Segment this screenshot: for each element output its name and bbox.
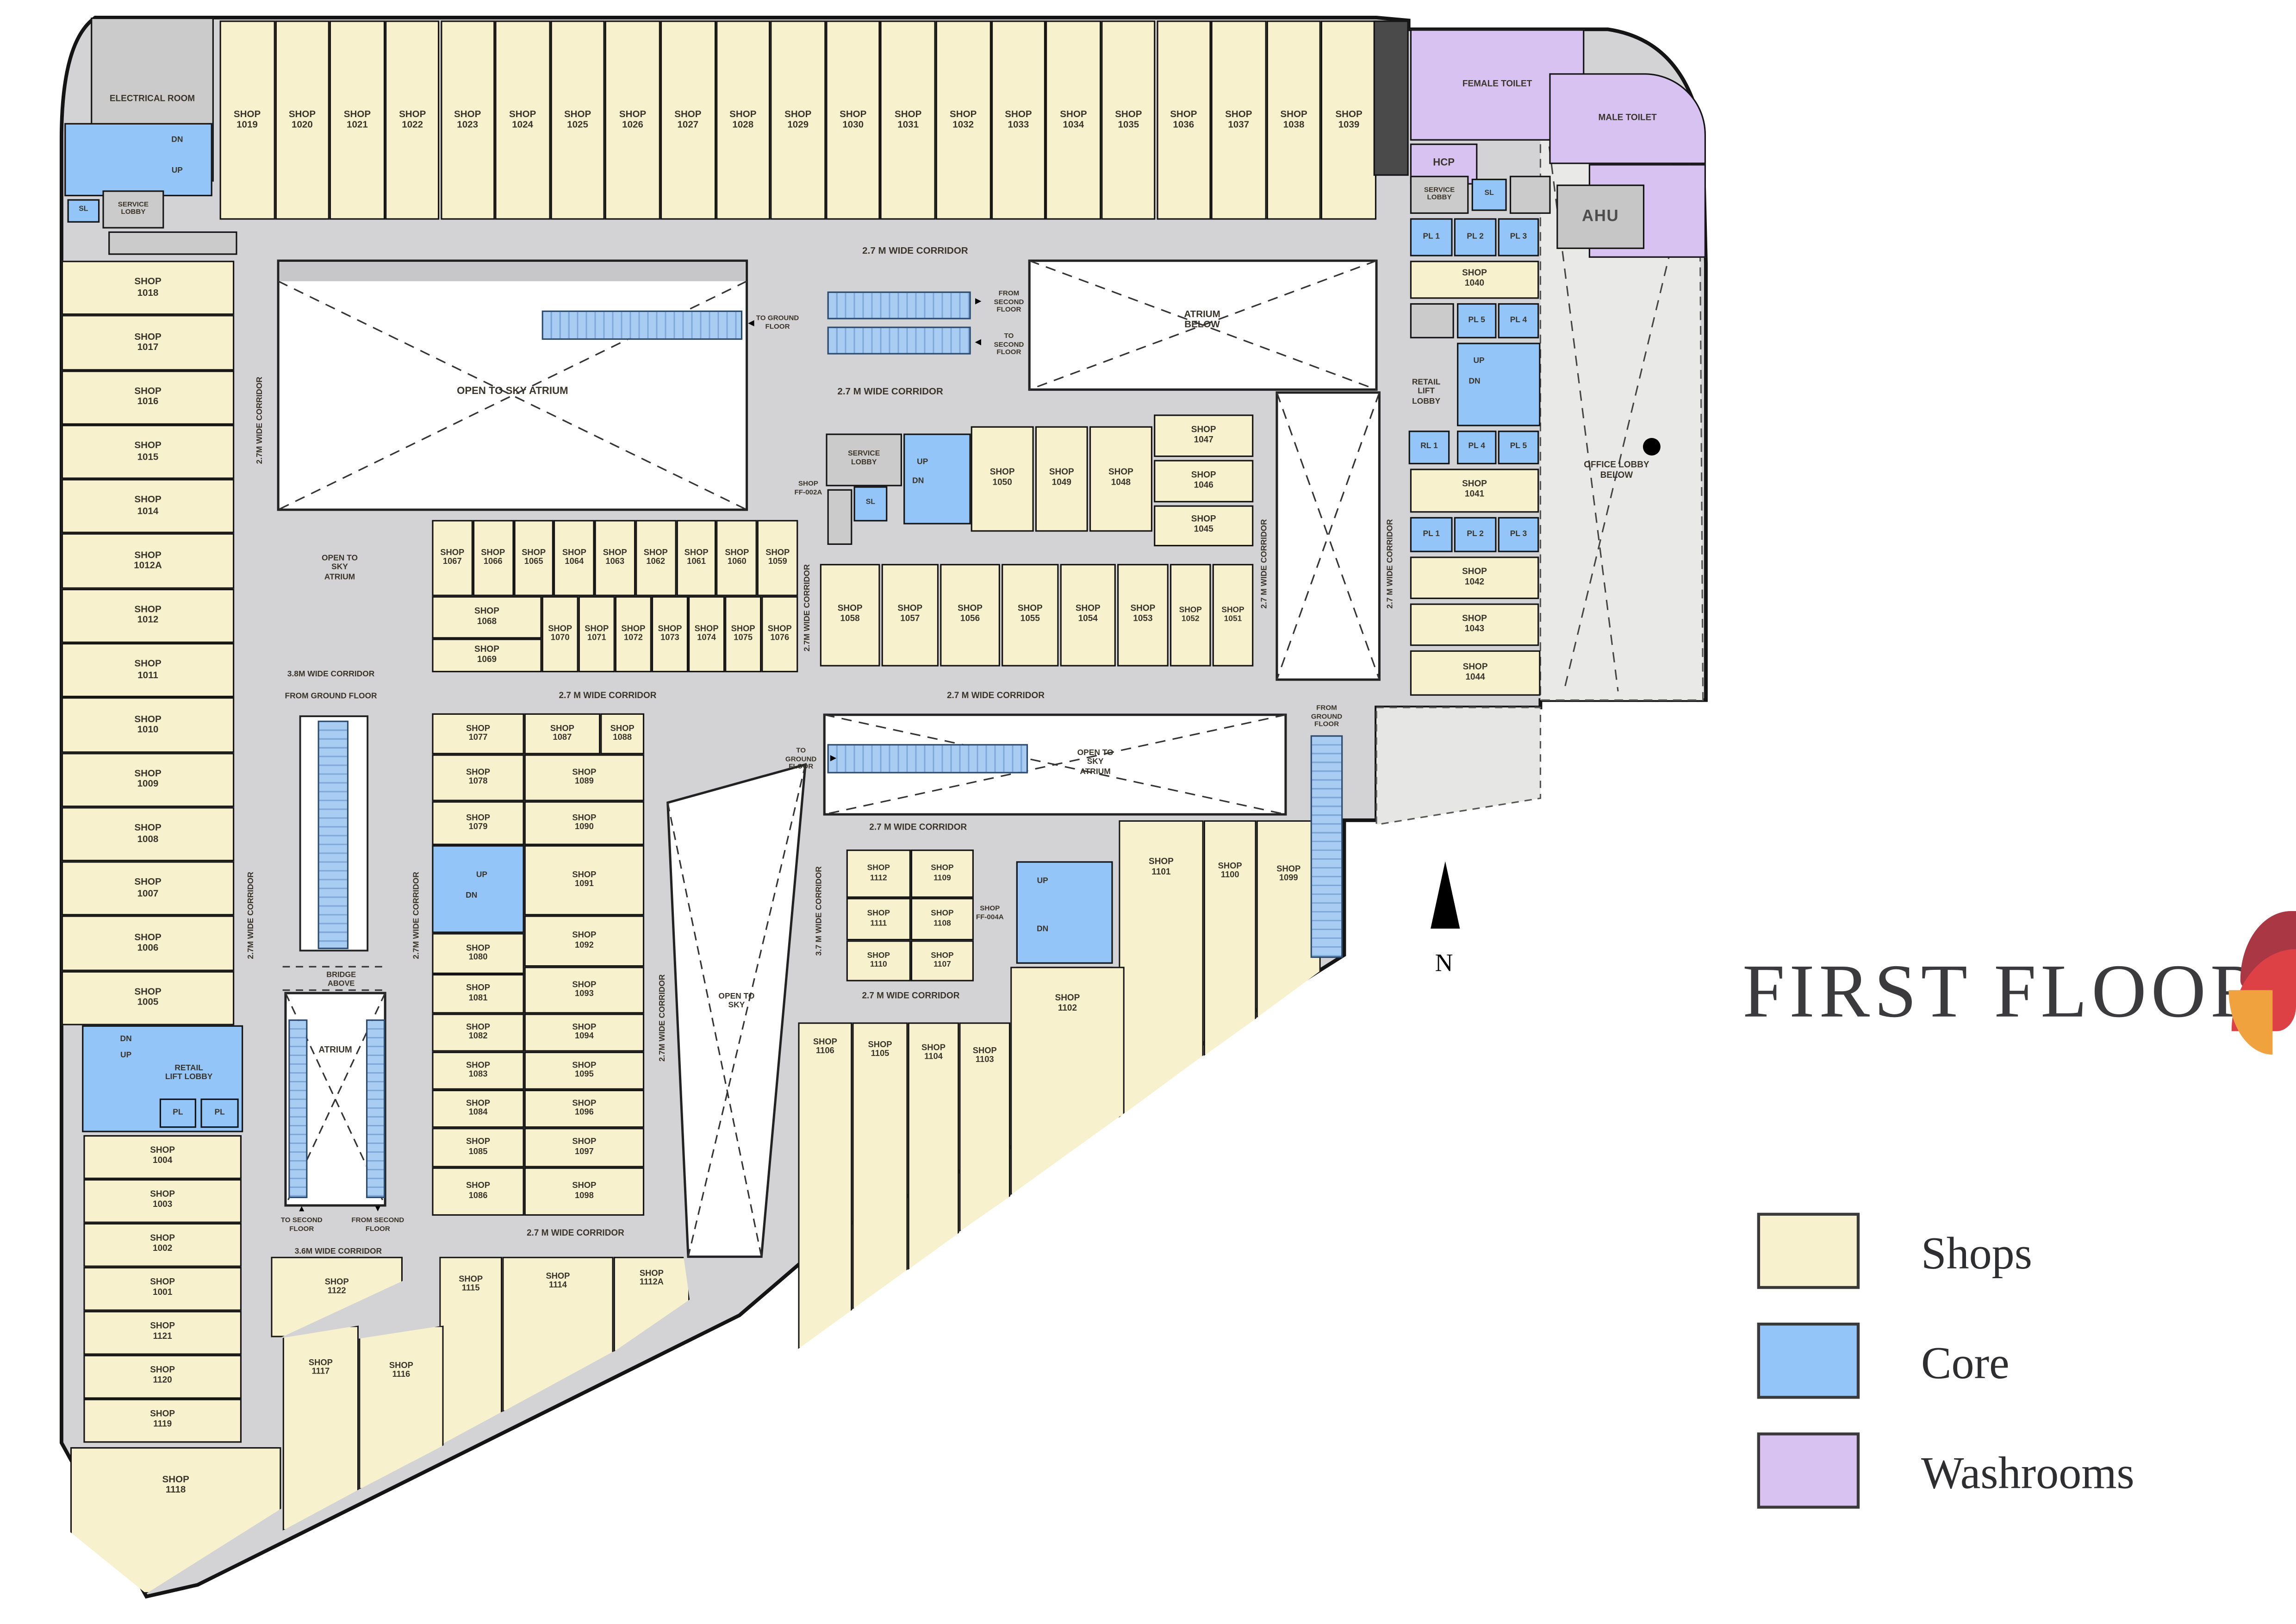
shop-1097-label: SHOP 1097 [572, 1138, 596, 1157]
shop-1047-label: SHOP 1047 [1191, 426, 1216, 446]
pl2-upper: PL 2 [1454, 218, 1497, 256]
shop-1091: SHOP 1091 [524, 845, 644, 916]
pl3-upper-label: PL 3 [1510, 233, 1527, 242]
shop-1074: SHOP 1074 [688, 596, 725, 673]
shop-1106-label: SHOP 1106 [813, 1038, 837, 1057]
pl4-upper-label: PL 4 [1510, 316, 1527, 325]
svc-pl [1410, 303, 1454, 338]
shop-1052: SHOP 1052 [1170, 564, 1211, 666]
pl2-lower: PL 2 [1454, 517, 1497, 552]
pl1-lower: PL 1 [1410, 517, 1453, 552]
shop-1097: SHOP 1097 [524, 1128, 644, 1167]
shop-1042-label: SHOP 1042 [1462, 568, 1487, 588]
rl1-label: RL 1 [1420, 443, 1437, 452]
shaft-ne [1510, 176, 1551, 214]
shop-1019: SHOP 1019 [220, 20, 275, 219]
shop-1010: SHOP 1010 [62, 698, 234, 752]
dn-ne: DN [1468, 378, 1480, 387]
shop-1008-label: SHOP 1008 [134, 824, 161, 845]
shop-1092-label: SHOP 1092 [572, 931, 596, 950]
shop-1117-label: SHOP 1117 [309, 1359, 333, 1378]
office-dot-2 [1643, 438, 1661, 456]
shop-1018-label: SHOP 1018 [134, 277, 161, 299]
shop-1036: SHOP 1036 [1156, 20, 1211, 219]
svc-nw [108, 231, 237, 255]
pl4-mid-label: PL 4 [1468, 443, 1485, 452]
shop-1019-label: SHOP 1019 [234, 109, 261, 131]
shop-1116-label: SHOP 1116 [389, 1362, 413, 1381]
shop-1100-label: SHOP 1100 [1218, 863, 1242, 882]
shop-1061: SHOP 1061 [676, 520, 717, 596]
corridor-blockA-below: 2.7 M WIDE CORRIDOR [559, 692, 657, 702]
shop-1062-label: SHOP 1062 [644, 549, 668, 568]
shop-1093-label: SHOP 1093 [572, 981, 596, 999]
shop-1020: SHOP 1020 [275, 20, 330, 219]
escalator-to-second [828, 327, 971, 355]
shop-1068-label: SHOP 1068 [474, 607, 499, 627]
shop-1016-label: SHOP 1016 [134, 387, 161, 408]
pl1-upper-label: PL 1 [1423, 233, 1439, 242]
shop-1012A-label: SHOP 1012A [134, 550, 162, 572]
shop-1023: SHOP 1023 [440, 20, 495, 219]
dn-L: DN [466, 892, 477, 901]
electrical-room-label: ELECTRICAL ROOM [110, 95, 195, 105]
shop-1006: SHOP 1006 [62, 916, 234, 971]
shop-1041: SHOP 1041 [1410, 468, 1539, 512]
shop-1009-label: SHOP 1009 [134, 769, 161, 790]
shop-1045: SHOP 1045 [1154, 506, 1253, 547]
shop-1100: SHOP 1100 [1204, 820, 1257, 1056]
shop-1014: SHOP 1014 [62, 479, 234, 534]
shop-1109: SHOP 1109 [911, 849, 974, 898]
shop-1007-label: SHOP 1007 [134, 878, 161, 899]
shop-1044: SHOP 1044 [1410, 650, 1541, 696]
page-title: FIRST FLOOR [1742, 949, 2265, 1036]
shop-1111: SHOP 1111 [846, 898, 911, 940]
to-second-floor-sw: TO SECOND FLOOR [281, 1218, 323, 1234]
shop-1055: SHOP 1055 [1002, 564, 1058, 666]
shop-1029-label: SHOP 1029 [784, 109, 811, 131]
shop-1112-label: SHOP 1112 [867, 865, 890, 883]
arrow-down-from-second: ▼ [373, 1206, 382, 1214]
shop-1026: SHOP 1026 [605, 20, 660, 219]
floor-plan: ELECTRICAL ROOMSLSERVICE LOBBYSHOP 1019S… [0, 0, 2296, 1624]
arrow-left-to-second: ◀ [975, 338, 981, 347]
shop-1031: SHOP 1031 [881, 20, 936, 219]
corridor-mid-top: 2.7 M WIDE CORRIDOR [837, 387, 943, 398]
sl-nw: SL [68, 199, 100, 223]
shop-1003-label: SHOP 1003 [150, 1191, 175, 1211]
shop-1057: SHOP 1057 [882, 564, 939, 666]
shop-1030-label: SHOP 1030 [840, 109, 866, 131]
svc-lobby-c-label: SERVICE LOBBY [848, 452, 880, 468]
shop-1024-label: SHOP 1024 [509, 109, 536, 131]
male-toilet-label: MALE TOILET [1599, 114, 1657, 124]
shop-1005: SHOP 1005 [62, 971, 234, 1025]
from-second-floor-c: FROM SECOND FLOOR [994, 291, 1024, 315]
shop-1098: SHOP 1098 [524, 1168, 644, 1216]
shop-1112: SHOP 1112 [846, 849, 911, 898]
dn-c: DN [912, 477, 924, 487]
corridor-top: 2.7 M WIDE CORRIDOR [862, 246, 968, 257]
shop-1046-label: SHOP 1046 [1191, 471, 1216, 491]
shop-1094-label: SHOP 1094 [572, 1023, 596, 1042]
shop-ff002a: SHOP FF-002A [795, 481, 822, 497]
shop-1081: SHOP 1081 [432, 974, 524, 1013]
service-lobby-nw-label: SERVICE LOBBY [118, 201, 149, 217]
open-to-sky-small: OPEN TO SKY ATRIUM [322, 555, 358, 582]
hcp-label: HCP [1433, 158, 1455, 170]
shop-1022-label: SHOP 1022 [399, 109, 426, 131]
shop-1088: SHOP 1088 [600, 713, 644, 755]
escalator-atrium-left [288, 1019, 307, 1198]
shop-1020-label: SHOP 1020 [289, 109, 316, 131]
to-ground-floor-bottom: TO GROUND FLOOR [785, 748, 816, 772]
shop-1078: SHOP 1078 [432, 754, 524, 801]
shop-1062: SHOP 1062 [635, 520, 676, 596]
shop-1032-label: SHOP 1032 [950, 109, 977, 131]
shop-1076-label: SHOP 1076 [768, 625, 792, 643]
shop-1050-label: SHOP 1050 [990, 469, 1015, 489]
shop-1042: SHOP 1042 [1410, 556, 1539, 599]
shop-1056-label: SHOP 1056 [958, 606, 983, 625]
retail-lift-lobby-sw: RETAIL LIFT LOBBY [165, 1064, 212, 1083]
shop-1119-label: SHOP 1119 [150, 1411, 175, 1431]
shop-1115-label: SHOP 1115 [459, 1276, 483, 1295]
shop-1028: SHOP 1028 [716, 20, 771, 219]
pl5-upper: PL 5 [1457, 303, 1496, 338]
shop-1105: SHOP 1105 [852, 1022, 908, 1309]
shop-1121: SHOP 1121 [83, 1311, 242, 1355]
shop-1028-label: SHOP 1028 [729, 109, 756, 131]
shop-1108-label: SHOP 1108 [931, 910, 953, 928]
shop-1044-label: SHOP 1044 [1463, 663, 1488, 683]
shop-1077: SHOP 1077 [432, 713, 524, 755]
shop-1099-label: SHOP 1099 [1276, 866, 1300, 885]
pl3-lower-label: PL 3 [1510, 530, 1527, 539]
shop-1091-label: SHOP 1091 [572, 871, 596, 890]
shop-1075-label: SHOP 1075 [731, 625, 755, 643]
north-label: N [1435, 949, 1453, 978]
shop-1075: SHOP 1075 [725, 596, 761, 673]
pl-sw-1-label: PL [173, 1109, 183, 1118]
up-L: UP [476, 871, 487, 881]
escalator-left-long [318, 721, 348, 949]
shop-1086-label: SHOP 1086 [466, 1182, 490, 1201]
shop-1047: SHOP 1047 [1154, 414, 1253, 457]
corridor-37: 3.7 M WIDE CORRIDOR [815, 866, 825, 956]
corridor-blockA-right: 2.7M WIDE CORRIDOR [803, 564, 813, 652]
shop-1055-label: SHOP 1055 [1018, 606, 1043, 625]
shop-1058: SHOP 1058 [820, 564, 880, 666]
sl-c-label: SL [866, 500, 875, 508]
shop-1088-label: SHOP 1088 [610, 725, 635, 743]
svc-c-strip [828, 489, 852, 545]
shop-1122-label: SHOP 1122 [325, 1279, 349, 1298]
up-sw: UP [120, 1051, 131, 1061]
shop-1063: SHOP 1063 [595, 520, 635, 596]
shop-1005-label: SHOP 1005 [134, 987, 161, 1009]
firestair-ne [1374, 20, 1409, 175]
shop-1023-label: SHOP 1023 [454, 109, 481, 131]
open-to-sky-atrium-main: OPEN TO SKY ATRIUM [457, 387, 568, 398]
shop-1033-label: SHOP 1033 [1005, 109, 1032, 131]
service-lobby-nw: SERVICE LOBBY [102, 190, 164, 228]
shop-1109-label: SHOP 1109 [931, 865, 953, 883]
shop-1043: SHOP 1043 [1410, 604, 1539, 646]
shop-1014-label: SHOP 1014 [134, 496, 161, 517]
shop-1087-label: SHOP 1087 [550, 725, 574, 743]
atrium-shaft: ATRIUM [318, 1047, 352, 1057]
shop-1073-label: SHOP 1073 [658, 625, 682, 643]
shop-1017-label: SHOP 1017 [134, 332, 161, 353]
shop-1012-label: SHOP 1012 [134, 605, 161, 626]
shop-1015-label: SHOP 1015 [134, 441, 161, 462]
shop-1066-label: SHOP 1066 [481, 549, 505, 568]
up-ne: UP [1473, 357, 1484, 366]
corridor-left-lower: 2.7M WIDE CORRIDOR [247, 872, 256, 959]
shop-1041-label: SHOP 1041 [1462, 481, 1487, 501]
shop-1095-label: SHOP 1095 [572, 1061, 596, 1080]
corridor-mid-left: 2.7M WIDE CORRIDOR [413, 872, 422, 959]
pl2-upper-label: PL 2 [1467, 233, 1483, 242]
shop-1079: SHOP 1079 [432, 801, 524, 845]
shop-1114-label: SHOP 1114 [546, 1273, 570, 1292]
shop-1087: SHOP 1087 [524, 713, 601, 755]
shop-1029: SHOP 1029 [771, 20, 826, 219]
shop-1120: SHOP 1120 [83, 1355, 242, 1399]
from-ground-floor-e: FROM GROUND FLOOR [1311, 706, 1342, 730]
sl-c: SL [854, 486, 888, 521]
shop-1024: SHOP 1024 [495, 20, 550, 219]
pl1-upper: PL 1 [1410, 218, 1453, 256]
shop-1085: SHOP 1085 [432, 1128, 524, 1167]
shop-1071: SHOP 1071 [579, 596, 615, 673]
shop-1037-label: SHOP 1037 [1225, 109, 1252, 131]
shop-1057-label: SHOP 1057 [897, 606, 922, 625]
shop-1034-label: SHOP 1034 [1060, 109, 1087, 131]
shop-1007: SHOP 1007 [62, 862, 234, 916]
shop-1090: SHOP 1090 [524, 801, 644, 845]
sl-ne: SL [1472, 179, 1507, 211]
shop-1077-label: SHOP 1077 [466, 725, 490, 743]
shop-1049-label: SHOP 1049 [1049, 469, 1074, 489]
rl1: RL 1 [1409, 431, 1450, 464]
shop-1048: SHOP 1048 [1089, 426, 1152, 532]
shop-1103: SHOP 1103 [959, 1022, 1010, 1231]
shop-1043-label: SHOP 1043 [1462, 615, 1487, 635]
pl5-mid: PL 5 [1498, 431, 1539, 464]
shop-1078-label: SHOP 1078 [466, 768, 490, 787]
from-second-floor-sw: FROM SECOND FLOOR [351, 1218, 404, 1234]
shop-1036-label: SHOP 1036 [1170, 109, 1197, 131]
shop-1048-label: SHOP 1048 [1108, 469, 1133, 489]
shop-1060-label: SHOP 1060 [725, 549, 749, 568]
corridor-wedge: 2.7M WIDE CORRIDOR [659, 974, 668, 1062]
shop-1061-label: SHOP 1061 [684, 549, 709, 568]
shop-1064: SHOP 1064 [554, 520, 595, 596]
shop-1082-label: SHOP 1082 [466, 1023, 490, 1042]
shop-1008: SHOP 1008 [62, 807, 234, 862]
arrow-right-from-second: ▶ [975, 297, 981, 306]
shop-1035: SHOP 1035 [1101, 20, 1156, 219]
open-to-sky-wedge: OPEN TO SKY [718, 993, 754, 1011]
atrium-right-void [1277, 393, 1379, 680]
shop-1003: SHOP 1003 [83, 1179, 242, 1223]
shop-1039: SHOP 1039 [1321, 20, 1376, 219]
shop-1110-label: SHOP 1110 [867, 952, 890, 970]
shop-1002: SHOP 1002 [83, 1223, 242, 1267]
shop-1112A-label: SHOP 1112A [640, 1270, 664, 1289]
shop-1067: SHOP 1067 [432, 520, 473, 596]
shop-1072: SHOP 1072 [615, 596, 652, 673]
shop-1011-label: SHOP 1011 [134, 660, 161, 681]
up-c: UP [917, 458, 928, 468]
shop-1035-label: SHOP 1035 [1115, 109, 1142, 131]
corridor-38: 3.8M WIDE CORRIDOR [287, 671, 375, 680]
atrium-below: ATRIUM BELOW [1184, 310, 1220, 331]
shop-1089-label: SHOP 1089 [572, 768, 596, 787]
shop-1081-label: SHOP 1081 [466, 984, 490, 1003]
shop-1093: SHOP 1093 [524, 967, 644, 1013]
open-to-sky-bottom: OPEN TO SKY ATRIUM [1077, 749, 1114, 777]
female-toilet-label: FEMALE TOILET [1462, 80, 1532, 90]
corridor-south: 2.7 M WIDE CORRIDOR [862, 993, 959, 1003]
escalator-atrium-right [366, 1019, 385, 1198]
shop-1045-label: SHOP 1045 [1191, 516, 1216, 536]
shop-1105-label: SHOP 1105 [868, 1042, 892, 1061]
shop-1096-label: SHOP 1096 [572, 1099, 596, 1118]
shop-1038: SHOP 1038 [1266, 20, 1321, 219]
shop-1085-label: SHOP 1085 [466, 1138, 490, 1157]
shop-1060: SHOP 1060 [716, 520, 757, 596]
shop-1053: SHOP 1053 [1117, 564, 1169, 666]
shop-1107: SHOP 1107 [911, 940, 974, 981]
pl5-mid-label: PL 5 [1510, 443, 1527, 452]
shop-1101-label: SHOP 1101 [1149, 858, 1174, 878]
shop-1079-label: SHOP 1079 [466, 814, 490, 833]
shop-1051: SHOP 1051 [1213, 564, 1254, 666]
shop-1037: SHOP 1037 [1211, 20, 1266, 219]
escalator-from-ground-shaft [1311, 735, 1343, 958]
shop-1094: SHOP 1094 [524, 1013, 644, 1051]
shop-1106: SHOP 1106 [798, 1022, 852, 1349]
shop-1065: SHOP 1065 [513, 520, 554, 596]
from-ground-floor-left: FROM GROUND FLOOR [285, 693, 377, 702]
corridor-left-upper: 2.7M WIDE CORRIDOR [256, 377, 265, 464]
shop-1054-label: SHOP 1054 [1076, 606, 1101, 625]
shop-1069-label: SHOP 1069 [474, 646, 499, 666]
shop-1071-label: SHOP 1071 [585, 625, 609, 643]
shop-1027-label: SHOP 1027 [674, 109, 701, 131]
below-1044-region [1376, 707, 1540, 824]
shop-1017: SHOP 1017 [62, 315, 234, 370]
shop-1104: SHOP 1104 [908, 1022, 959, 1270]
office-lobby-below: OFFICE LOBBY BELOW [1584, 462, 1649, 482]
shop-1119: SHOP 1119 [83, 1399, 242, 1443]
atrium-open-to-sky-main [278, 261, 747, 510]
shop-1059-label: SHOP 1059 [765, 549, 790, 568]
shop-1018: SHOP 1018 [62, 261, 234, 315]
shop-1006-label: SHOP 1006 [134, 933, 161, 954]
shop-1051-label: SHOP 1051 [1221, 606, 1244, 624]
shop-1083: SHOP 1083 [432, 1052, 524, 1090]
stair-sc [1016, 861, 1113, 963]
sl-nw-label: SL [79, 207, 88, 215]
arrow-left-to-ground-top: ◀ [748, 319, 754, 328]
shop-1084-label: SHOP 1084 [466, 1099, 490, 1118]
legend-label-core: Core [1921, 1337, 2010, 1390]
shop-1080: SHOP 1080 [432, 933, 524, 974]
shop-1107-label: SHOP 1107 [931, 952, 953, 970]
shop-1025-label: SHOP 1025 [564, 109, 591, 131]
shop-1092: SHOP 1092 [524, 915, 644, 967]
shop-1046: SHOP 1046 [1154, 460, 1253, 502]
pl5-upper-label: PL 5 [1468, 316, 1485, 325]
pl2-lower-label: PL 2 [1467, 530, 1483, 539]
shop-1001-label: SHOP 1001 [150, 1279, 175, 1299]
male-toilet: MALE TOILET [1549, 73, 1706, 164]
shop-1001: SHOP 1001 [83, 1267, 242, 1311]
shop-1056: SHOP 1056 [940, 564, 1000, 666]
shop-1064-label: SHOP 1064 [562, 549, 586, 568]
to-ground-floor-top: TO GROUND FLOOR [756, 316, 799, 332]
escalator-to-ground-top [542, 311, 742, 340]
sl-ne-label: SL [1485, 191, 1494, 199]
stair-L [432, 845, 524, 933]
up-sc: UP [1037, 877, 1048, 887]
shop-1012: SHOP 1012 [62, 588, 234, 643]
shop-1040-label: SHOP 1040 [1462, 270, 1487, 290]
arrow-up-to-second: ▲ [297, 1206, 306, 1214]
corridor-atrium-right: 2.7 M WIDE CORRIDOR [1261, 519, 1270, 608]
shop-1027: SHOP 1027 [660, 20, 716, 219]
shop-1021-label: SHOP 1021 [344, 109, 371, 131]
shop-1026-label: SHOP 1026 [619, 109, 646, 131]
shop-1063-label: SHOP 1063 [603, 549, 627, 568]
shop-1070-label: SHOP 1070 [548, 625, 572, 643]
shop-1066: SHOP 1066 [473, 520, 513, 596]
shop-1050: SHOP 1050 [971, 426, 1034, 532]
shop-1111-label: SHOP 1111 [867, 910, 890, 928]
pl-sw-2-label: PL [214, 1109, 224, 1118]
dn-sc: DN [1037, 925, 1048, 935]
shop-1004-label: SHOP 1004 [150, 1147, 175, 1167]
shop-1033: SHOP 1033 [991, 20, 1046, 219]
to-second-floor-c: TO SECOND FLOOR [994, 334, 1024, 358]
shop-1103-label: SHOP 1103 [973, 1047, 997, 1066]
shop-1073: SHOP 1073 [652, 596, 688, 673]
shop-1108: SHOP 1108 [911, 898, 974, 940]
legend-swatch-shops [1757, 1213, 1860, 1289]
legend-swatch-core [1757, 1323, 1860, 1399]
shop-1090-label: SHOP 1090 [572, 814, 596, 833]
shop-1095: SHOP 1095 [524, 1052, 644, 1090]
shop-1040: SHOP 1040 [1410, 261, 1539, 299]
pl4-upper: PL 4 [1498, 303, 1539, 338]
shop-1053-label: SHOP 1053 [1130, 606, 1155, 625]
shop-1104-label: SHOP 1104 [921, 1044, 946, 1063]
pl-sw-1: PL [160, 1099, 196, 1128]
corridor-bottom-atrium: 2.7 M WIDE CORRIDOR [869, 824, 967, 834]
shop-1009: SHOP 1009 [62, 752, 234, 807]
arrow-right-to-ground: ▶ [830, 754, 836, 763]
up-nw: UP [172, 167, 183, 176]
shop-1059: SHOP 1059 [757, 520, 798, 596]
shop-1068: SHOP 1068 [432, 596, 541, 639]
shop-1052-label: SHOP 1052 [1179, 606, 1202, 624]
bridge-above: BRIDGE ABOVE [326, 973, 356, 990]
